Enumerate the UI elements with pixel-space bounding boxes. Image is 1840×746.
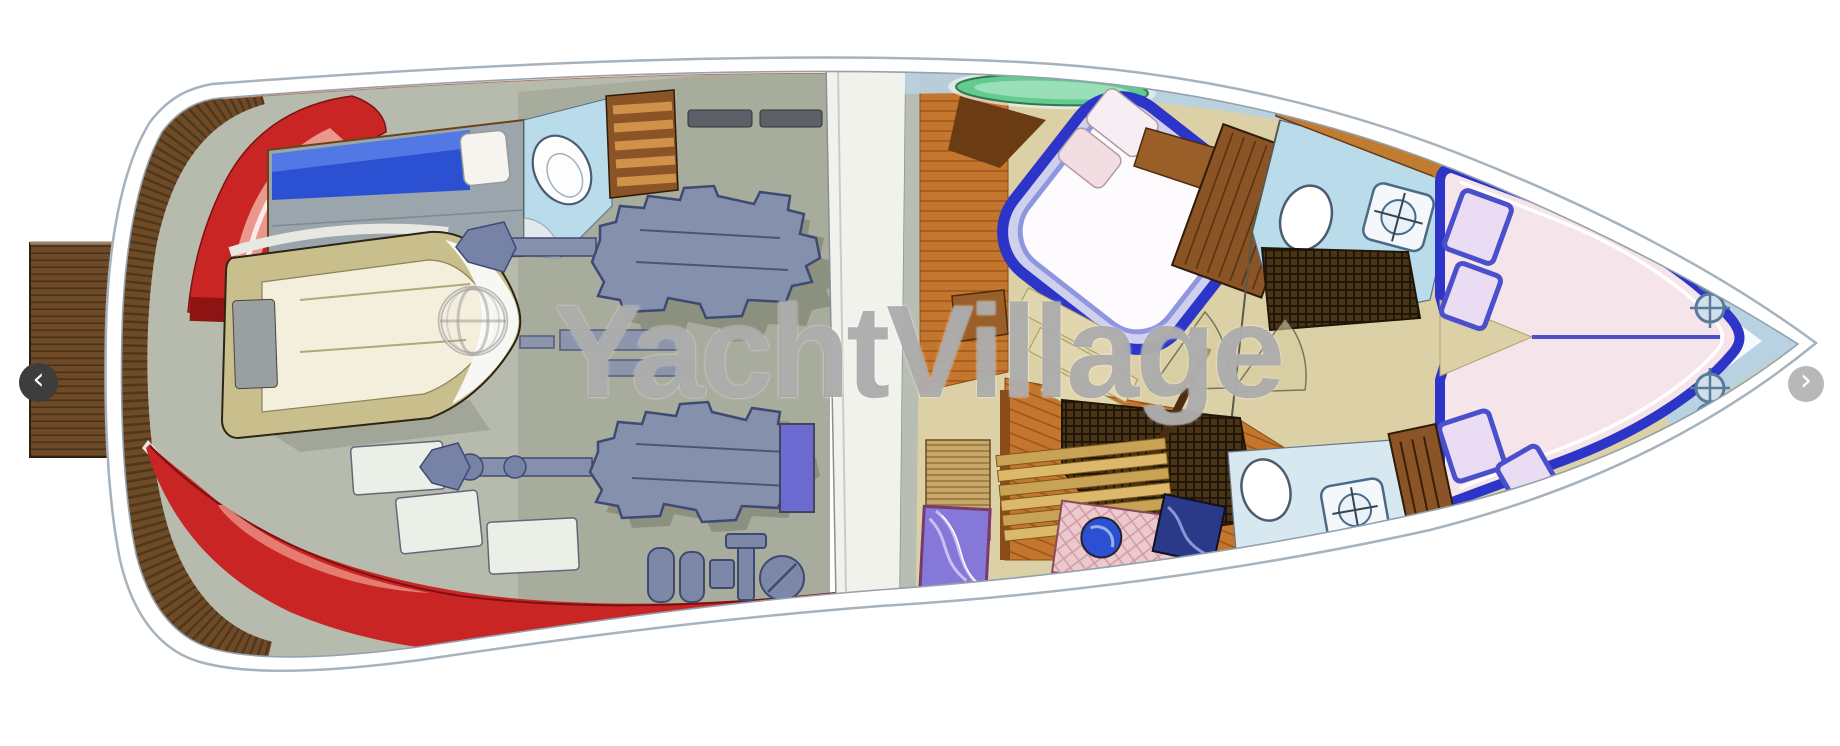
dresser bbox=[606, 90, 678, 198]
carousel-prev-button[interactable]: ‹ bbox=[19, 363, 58, 402]
carousel-next-button[interactable]: › bbox=[1788, 366, 1824, 402]
watermark-text: YachtVillage bbox=[554, 286, 1281, 418]
chevron-right-icon: › bbox=[1800, 366, 1812, 396]
vent-grille bbox=[760, 110, 822, 127]
vent-grille bbox=[688, 110, 752, 127]
green-rug bbox=[1276, 578, 1324, 602]
image-carousel-viewport: YachtVillage ‹ › bbox=[0, 0, 1840, 746]
watermark-globe-icon bbox=[434, 282, 512, 360]
galley bbox=[1052, 494, 1225, 608]
tender-engine-box bbox=[232, 299, 277, 388]
berth-pillow bbox=[459, 130, 510, 187]
chevron-left-icon: ‹ bbox=[33, 365, 45, 395]
